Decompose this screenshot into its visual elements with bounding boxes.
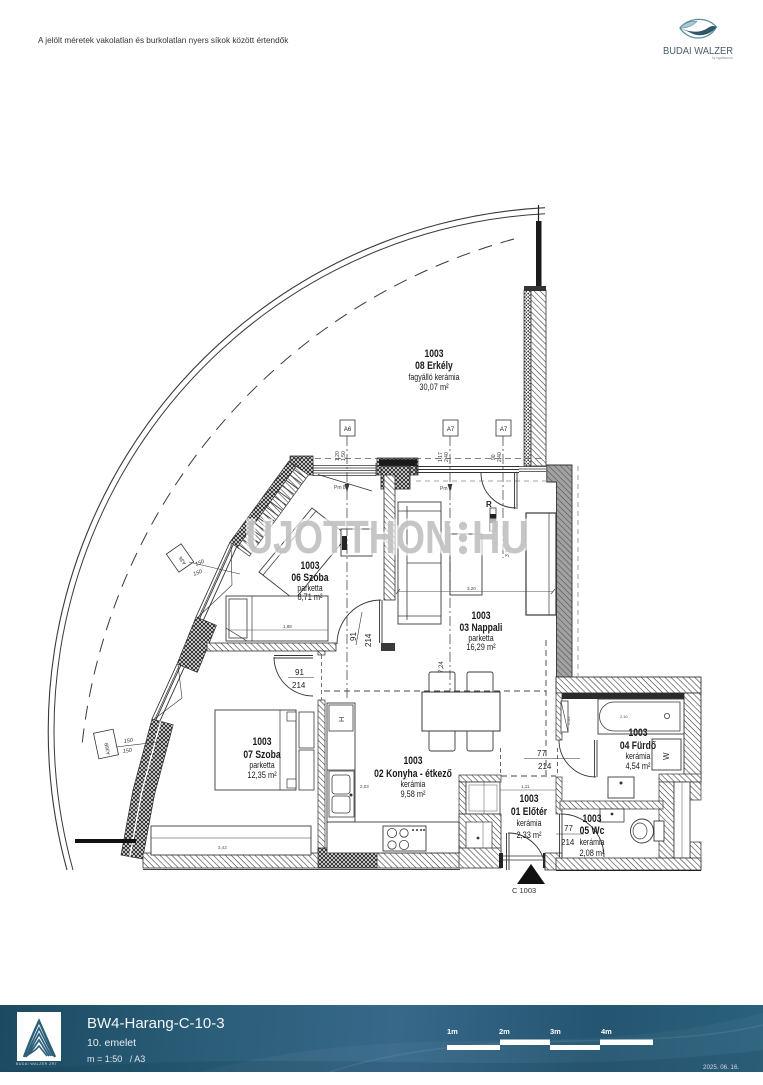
svg-text:214: 214 xyxy=(292,681,306,690)
svg-text:A jelölt méretek vakolatlan és: A jelölt méretek vakolatlan és burkolatl… xyxy=(38,36,289,45)
svg-text:2,03: 2,03 xyxy=(360,784,369,789)
svg-text:05 Wc: 05 Wc xyxy=(580,825,605,837)
svg-text:30,07 m²: 30,07 m² xyxy=(419,381,448,392)
svg-text:A7: A7 xyxy=(500,427,508,433)
svg-text:1003: 1003 xyxy=(582,813,602,825)
svg-text:77: 77 xyxy=(564,824,573,833)
svg-text:9,58 m²: 9,58 m² xyxy=(400,788,425,799)
svg-text:91: 91 xyxy=(295,668,304,677)
svg-text:1,50: 1,50 xyxy=(341,451,347,461)
svg-text:214: 214 xyxy=(538,762,552,771)
svg-text:1003: 1003 xyxy=(252,736,272,748)
svg-text:214: 214 xyxy=(561,838,575,847)
svg-text:2,40: 2,40 xyxy=(497,452,503,462)
svg-text:HU: HU xyxy=(472,511,529,563)
svg-text:H: H xyxy=(337,717,346,722)
svg-text:16,29 m²: 16,29 m² xyxy=(466,641,495,652)
svg-text:3,42: 3,42 xyxy=(218,845,227,850)
svg-text:08 Erkély: 08 Erkély xyxy=(415,360,453,372)
svg-text:C 1003: C 1003 xyxy=(512,886,536,895)
svg-text:4m: 4m xyxy=(601,1027,612,1036)
svg-text:Pm 85: Pm 85 xyxy=(334,485,349,491)
svg-text:Pm 0: Pm 0 xyxy=(440,486,452,492)
svg-text:A7: A7 xyxy=(447,427,455,433)
svg-text:kerámia: kerámia xyxy=(580,837,605,847)
svg-text:2,40: 2,40 xyxy=(620,714,629,719)
svg-text:1003: 1003 xyxy=(424,348,444,360)
svg-text:01 Előtér: 01 Előtér xyxy=(511,806,547,818)
svg-text:2,40: 2,40 xyxy=(444,452,450,462)
svg-text:77: 77 xyxy=(537,749,546,758)
svg-text:8,71 m²: 8,71 m² xyxy=(297,591,322,602)
svg-text:12,35 m²: 12,35 m² xyxy=(247,769,276,780)
svg-text:2,08 m²: 2,08 m² xyxy=(579,847,604,858)
svg-text:91: 91 xyxy=(349,632,358,641)
svg-text:150: 150 xyxy=(193,569,205,578)
svg-text:4,54 m²: 4,54 m² xyxy=(625,760,650,771)
svg-text:1m: 1m xyxy=(447,1027,458,1036)
svg-text:R: R xyxy=(486,500,492,509)
svg-text:kerámia: kerámia xyxy=(517,818,542,828)
svg-text:150: 150 xyxy=(122,748,133,755)
svg-text:3m: 3m xyxy=(550,1027,561,1036)
svg-text:2,33 m²: 2,33 m² xyxy=(516,829,541,840)
svg-text:150: 150 xyxy=(123,738,134,745)
svg-text:by ingatlancom: by ingatlancom xyxy=(712,56,733,60)
svg-text:1003: 1003 xyxy=(403,755,423,767)
svg-text:1003: 1003 xyxy=(471,610,491,622)
svg-text:1,88: 1,88 xyxy=(283,624,292,629)
svg-text:7,24: 7,24 xyxy=(439,661,445,673)
svg-text:150: 150 xyxy=(195,559,207,568)
svg-text:UJOTTHON: UJOTTHON xyxy=(246,511,452,563)
svg-text:214: 214 xyxy=(364,633,373,647)
svg-text:W: W xyxy=(662,752,671,760)
svg-text:3,20: 3,20 xyxy=(467,586,476,591)
svg-text:A6: A6 xyxy=(344,427,352,433)
svg-text:1,11: 1,11 xyxy=(521,784,530,789)
svg-text:2m: 2m xyxy=(499,1027,510,1036)
svg-text:1003: 1003 xyxy=(519,793,539,805)
svg-text:1003: 1003 xyxy=(628,727,648,739)
